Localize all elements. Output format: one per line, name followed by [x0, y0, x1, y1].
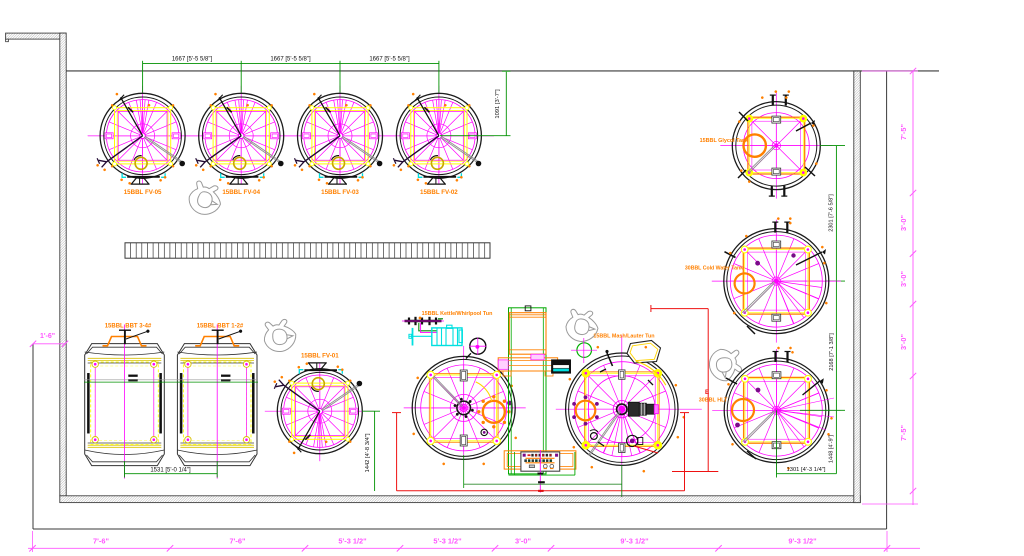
svg-text:7'-5": 7'-5"	[899, 124, 908, 140]
svg-text:1448 [4'-9"]: 1448 [4'-9"]	[829, 434, 835, 463]
svg-text:30BBL Cold Water Tank: 30BBL Cold Water Tank	[685, 266, 743, 272]
svg-text:1667 [5'-5 5/8"]: 1667 [5'-5 5/8"]	[369, 57, 410, 63]
svg-text:30BBL HLT: 30BBL HLT	[699, 398, 728, 404]
svg-text:15BBL BBT 1-2#: 15BBL BBT 1-2#	[197, 323, 244, 329]
svg-text:1091 [3'-7"]: 1091 [3'-7"]	[495, 89, 501, 119]
svg-text:2168 [7'-1 3/8"]: 2168 [7'-1 3/8"]	[829, 333, 835, 371]
svg-text:1301 [4'-3 1/4"]: 1301 [4'-3 1/4"]	[787, 467, 826, 473]
svg-text:15BBL FV-04: 15BBL FV-04	[222, 189, 260, 196]
svg-text:15BBL FV-01: 15BBL FV-01	[301, 353, 339, 360]
svg-text:15BBL BBT 3-4#: 15BBL BBT 3-4#	[105, 323, 152, 329]
svg-text:3'-0": 3'-0"	[899, 215, 908, 231]
svg-text:1531 [5'-0 1/4"]: 1531 [5'-0 1/4"]	[150, 467, 191, 473]
svg-text:7'-6": 7'-6"	[230, 537, 246, 546]
svg-text:15BBL FV-03: 15BBL FV-03	[321, 189, 359, 196]
svg-text:1667 [5'-5 5/8"]: 1667 [5'-5 5/8"]	[172, 57, 213, 63]
svg-text:3'-0": 3'-0"	[899, 334, 908, 350]
svg-text:5'-3 1/2": 5'-3 1/2"	[433, 537, 462, 546]
svg-text:7'-5": 7'-5"	[899, 425, 908, 441]
svg-text:1442 [4'-8 3/4"]: 1442 [4'-8 3/4"]	[365, 433, 371, 472]
svg-text:5'-3 1/2": 5'-3 1/2"	[338, 537, 367, 546]
svg-text:15BBL Glycol Tank: 15BBL Glycol Tank	[700, 138, 749, 144]
svg-text:3'-0": 3'-0"	[899, 271, 908, 287]
svg-text:15BBL Kettle/Whirlpool Tun: 15BBL Kettle/Whirlpool Tun	[422, 311, 493, 317]
svg-text:15BBL FV-05: 15BBL FV-05	[124, 189, 162, 196]
svg-text:1667 [5'-5 5/8"]: 1667 [5'-5 5/8"]	[270, 57, 311, 63]
svg-text:1'-6": 1'-6"	[40, 333, 55, 340]
svg-text:15BBL FV-02: 15BBL FV-02	[420, 189, 458, 196]
svg-text:3'-0": 3'-0"	[515, 537, 531, 546]
svg-text:7'-6": 7'-6"	[93, 537, 109, 546]
svg-text:2301 [7'-6 5/8"]: 2301 [7'-6 5/8"]	[828, 194, 834, 232]
svg-text:9'-3 1/2": 9'-3 1/2"	[788, 537, 817, 546]
svg-text:15BBL Mash/Lauter Tun: 15BBL Mash/Lauter Tun	[593, 334, 654, 340]
svg-text:9'-3 1/2": 9'-3 1/2"	[620, 537, 649, 546]
